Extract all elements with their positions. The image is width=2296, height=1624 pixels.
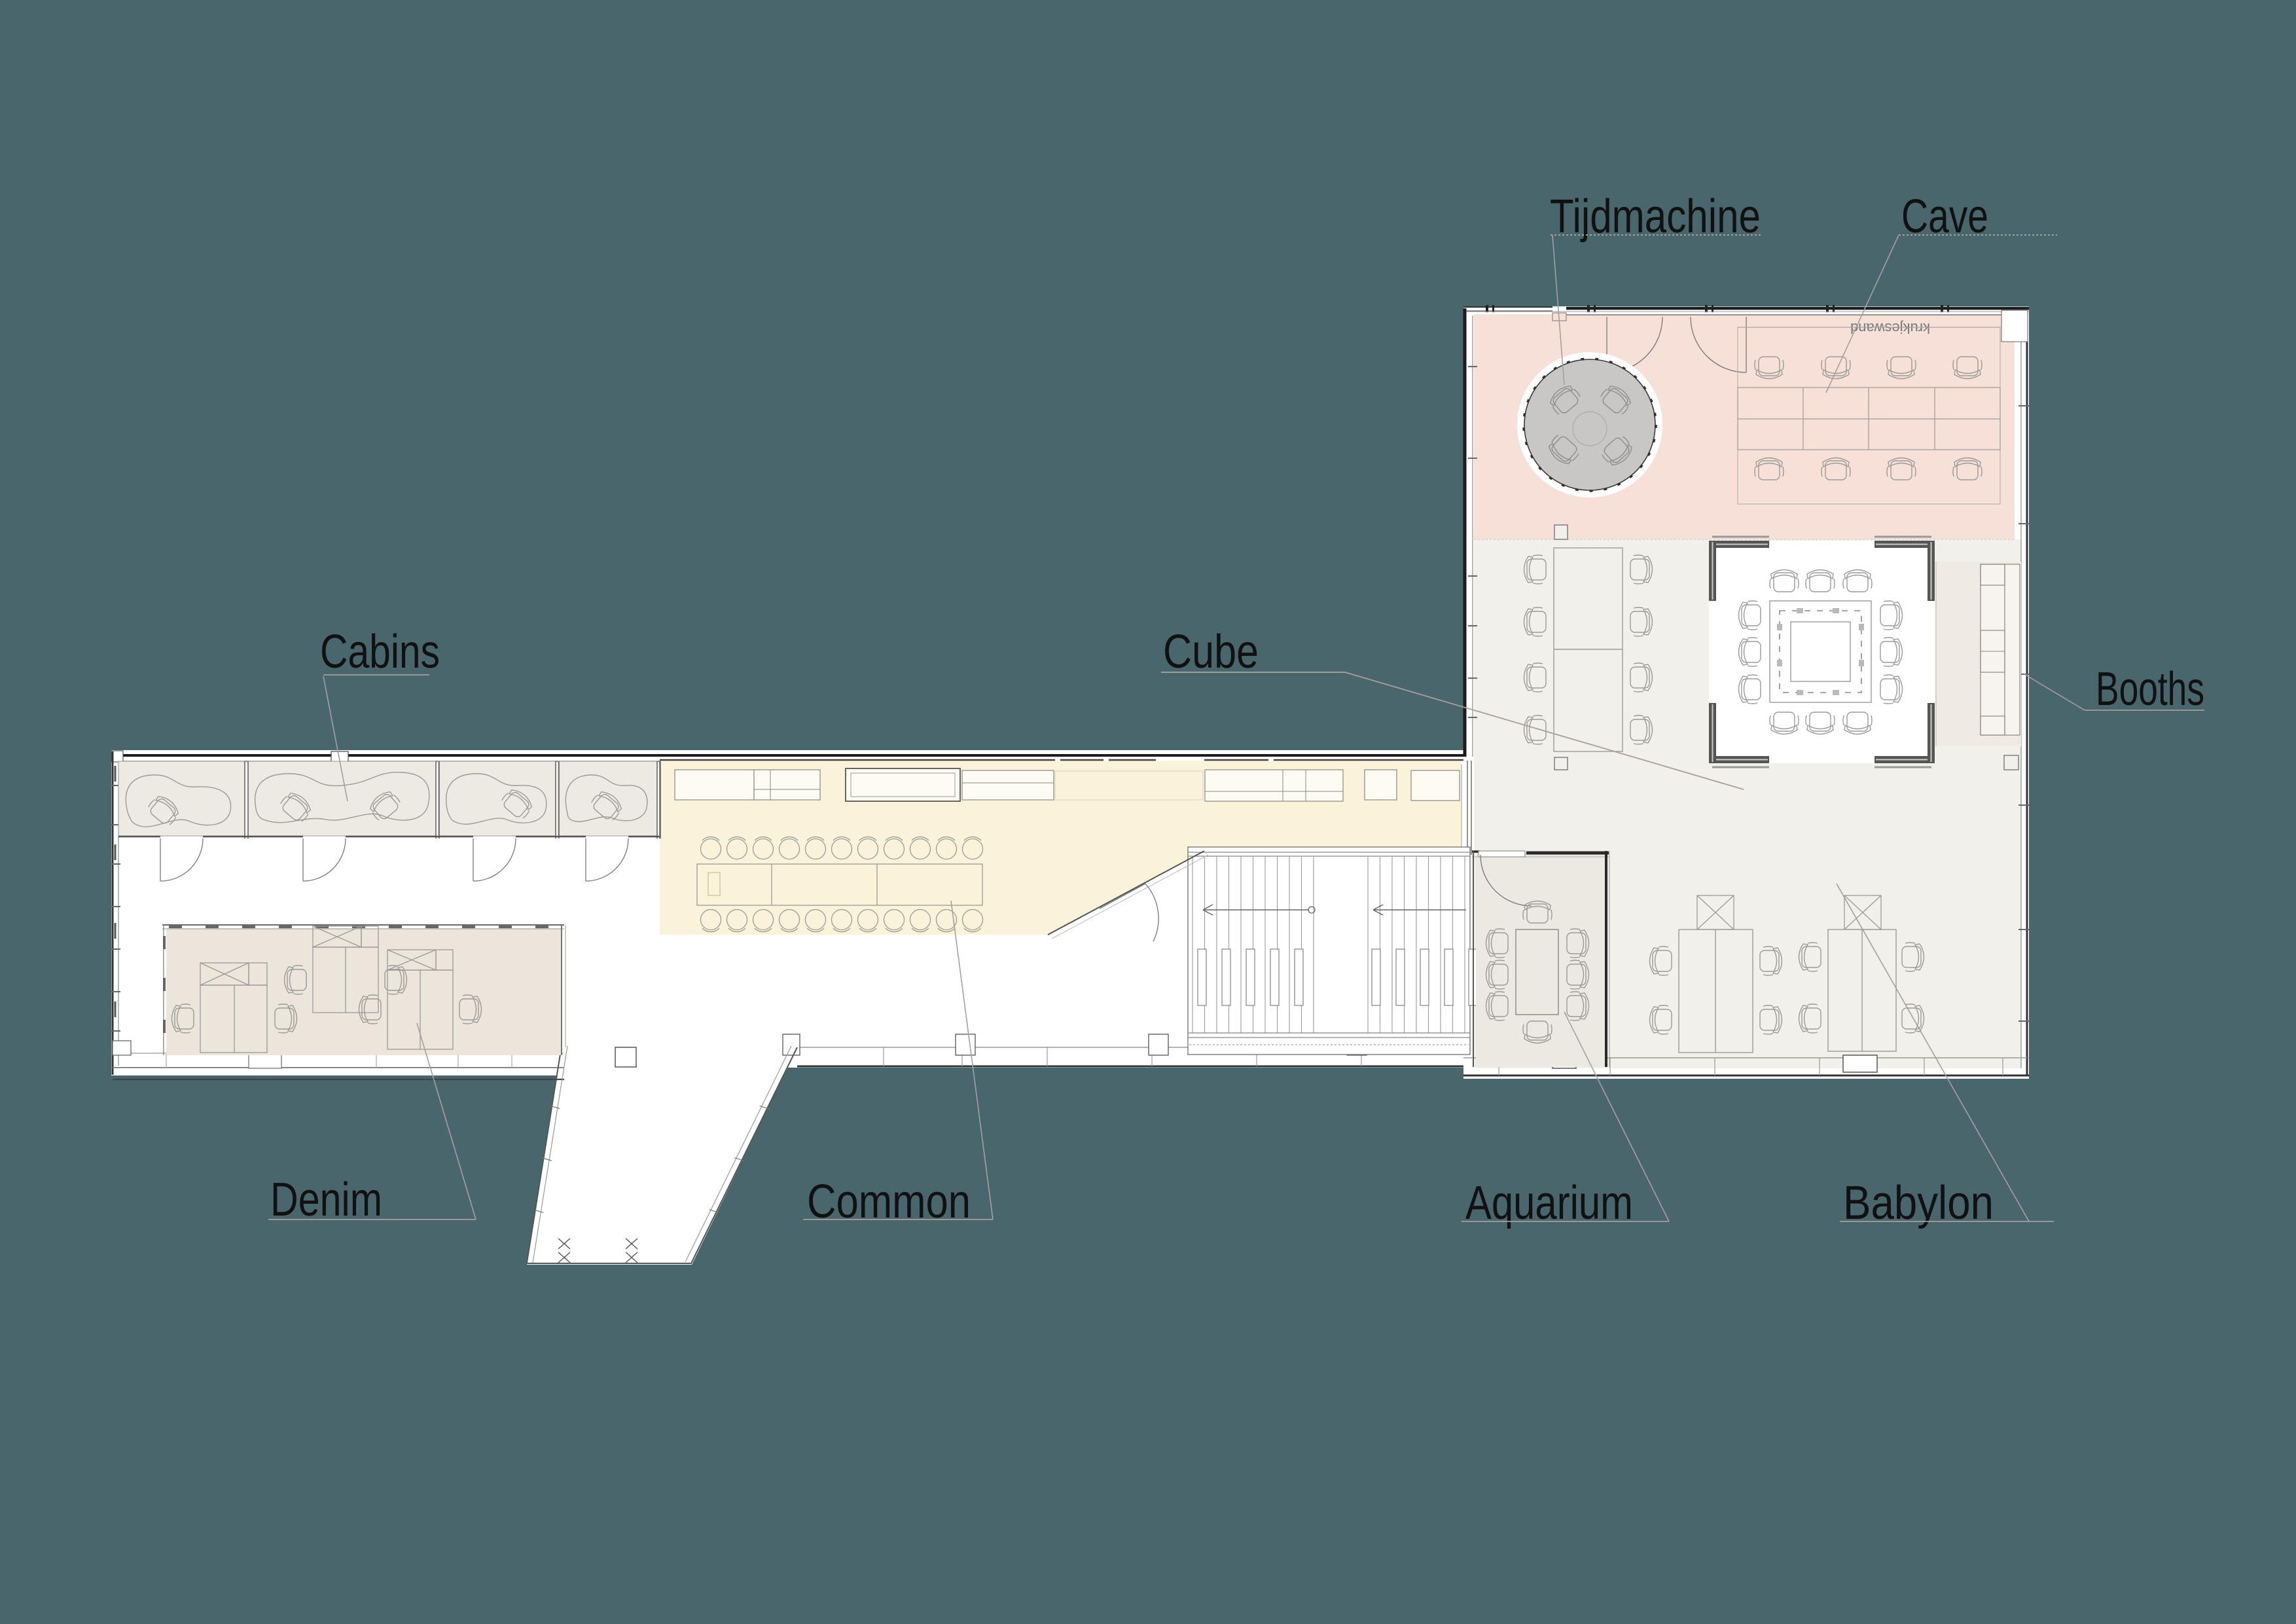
svg-text:krukjeswand: krukjeswand (1850, 320, 1930, 336)
svg-text:Common: Common (807, 1176, 971, 1228)
svg-text:Cube: Cube (1163, 626, 1259, 678)
svg-text:Cave: Cave (1901, 190, 1988, 243)
svg-text:Denim: Denim (270, 1174, 382, 1226)
svg-text:Booths: Booths (2096, 663, 2204, 715)
svg-text:Cabins: Cabins (320, 626, 440, 678)
